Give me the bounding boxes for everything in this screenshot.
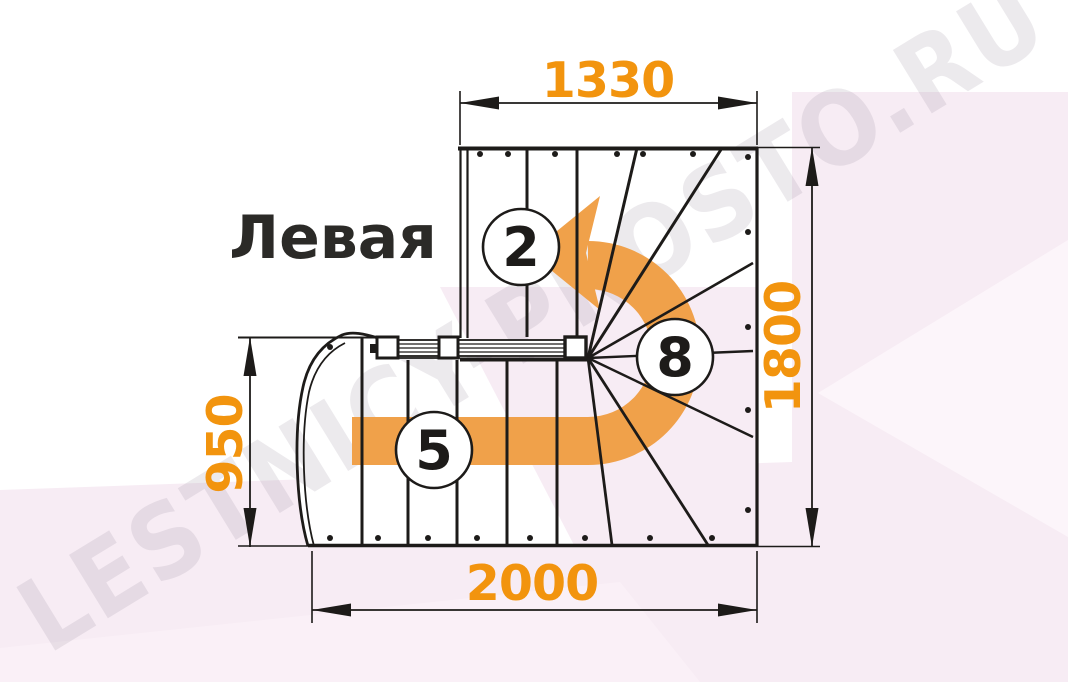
- baluster-dot: [745, 407, 751, 413]
- newel-post-left: [377, 337, 398, 358]
- baluster-dot: [527, 535, 533, 541]
- baluster-dot: [327, 344, 333, 350]
- baluster-dot: [425, 535, 431, 541]
- baluster-dot: [327, 535, 333, 541]
- dimension-value-top: 1330: [542, 52, 674, 109]
- plan-canvas: LESTNICY-PROSTO.RU: [0, 0, 1068, 682]
- baluster-dot: [647, 535, 653, 541]
- dimension-value-left: 950: [197, 394, 254, 493]
- baluster-dot: [582, 535, 588, 541]
- step-number-label: 5: [415, 419, 453, 482]
- step-number-lower: 5: [396, 412, 472, 488]
- staircase-drawing: LESTNICY-PROSTO.RU: [0, 0, 1068, 682]
- baluster-dot: [614, 151, 620, 157]
- baluster-dot: [505, 151, 511, 157]
- baluster-dot: [552, 151, 558, 157]
- step-number-label: 2: [502, 216, 540, 279]
- step-number-winder: 8: [637, 319, 713, 395]
- dimension-value-right: 1800: [755, 281, 812, 413]
- baluster-dot: [745, 324, 751, 330]
- baluster-dot: [375, 535, 381, 541]
- baluster-dot: [745, 154, 751, 160]
- step-number-upper: 2: [483, 209, 559, 285]
- step-number-label: 8: [656, 326, 694, 389]
- baluster-dot: [474, 535, 480, 541]
- baluster-dot: [477, 151, 483, 157]
- dimension-value-bottom: 2000: [466, 555, 598, 612]
- newel-post-middle: [439, 337, 458, 358]
- baluster-dot: [745, 507, 751, 513]
- baluster-dot: [690, 151, 696, 157]
- baluster-dot: [709, 535, 715, 541]
- baluster-dot: [640, 151, 646, 157]
- page-title: Левая: [229, 203, 437, 273]
- baluster-dot: [745, 229, 751, 235]
- newel-post-center: [565, 337, 586, 358]
